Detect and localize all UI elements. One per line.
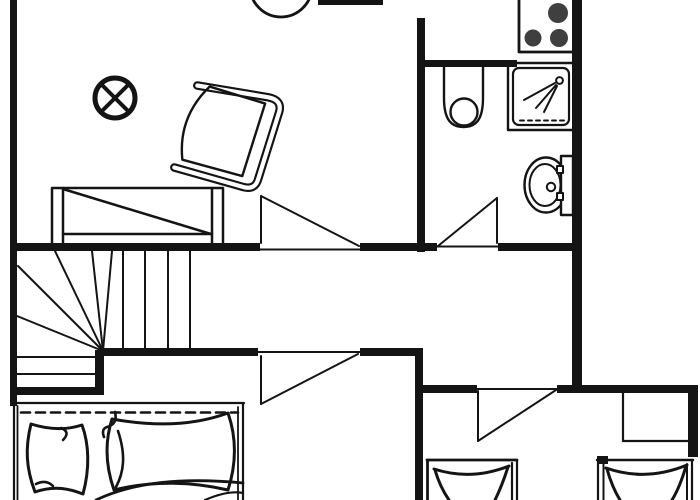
- wall-lower-a: [415, 385, 477, 393]
- stair-winder-1: [18, 266, 103, 351]
- armchair: [170, 74, 285, 195]
- stair-winder-3: [92, 251, 103, 351]
- door-swing-bedroom: [478, 390, 556, 441]
- wall-kitchen-divider: [417, 18, 425, 252]
- shower-head-icon: [556, 77, 563, 84]
- stair-winder-2: [55, 251, 103, 351]
- wall-landing-b: [360, 348, 423, 356]
- bidet-hinge-top: [557, 166, 563, 173]
- bidet-hinge-bottom: [557, 193, 563, 200]
- wall-landing-a: [103, 348, 258, 356]
- wall-lower-b: [557, 385, 698, 393]
- door-swing-hall: [261, 354, 358, 404]
- pillow-right: [107, 413, 234, 490]
- stair-winder-4: [103, 251, 112, 351]
- wall-hall-c: [498, 243, 582, 251]
- wall-stair-horizontal: [10, 387, 104, 395]
- wall-left: [10, 0, 17, 406]
- single-bed-2-mattress-left: [607, 469, 620, 500]
- round-table: [250, 0, 312, 17]
- door-swing-bathroom: [438, 198, 497, 246]
- stove-burner-3: [550, 29, 568, 47]
- door-swing-living: [261, 196, 359, 246]
- sofa-diagonal: [63, 189, 211, 234]
- floor-plan-canvas: [0, 0, 700, 500]
- stove-burner-2: [525, 30, 542, 47]
- bidet-tank: [561, 156, 573, 215]
- wall-bathroom-top: [417, 60, 517, 67]
- sofa-outline: [52, 188, 223, 246]
- floor-plan: [0, 0, 700, 500]
- single-bed-1-mattress-right: [495, 467, 508, 500]
- toilet-bowl: [451, 99, 478, 126]
- wall-hall-a: [10, 243, 260, 251]
- single-bed-1-mattress-top: [434, 466, 509, 474]
- single-bed-1-mattress-left: [435, 470, 449, 500]
- bidet-drain: [547, 183, 555, 191]
- single-bed-2-mattress-top: [606, 465, 687, 474]
- wall-bedroom-divider: [415, 350, 423, 500]
- bidet-rim-inner: [530, 164, 561, 206]
- wall-right-upper: [572, 0, 582, 392]
- wall-top-segment: [318, 0, 383, 5]
- wall-hall-b: [360, 243, 437, 251]
- wall-right-lower: [688, 385, 698, 457]
- stair-winder-5: [17, 316, 103, 351]
- stove-burner-1: [548, 3, 568, 23]
